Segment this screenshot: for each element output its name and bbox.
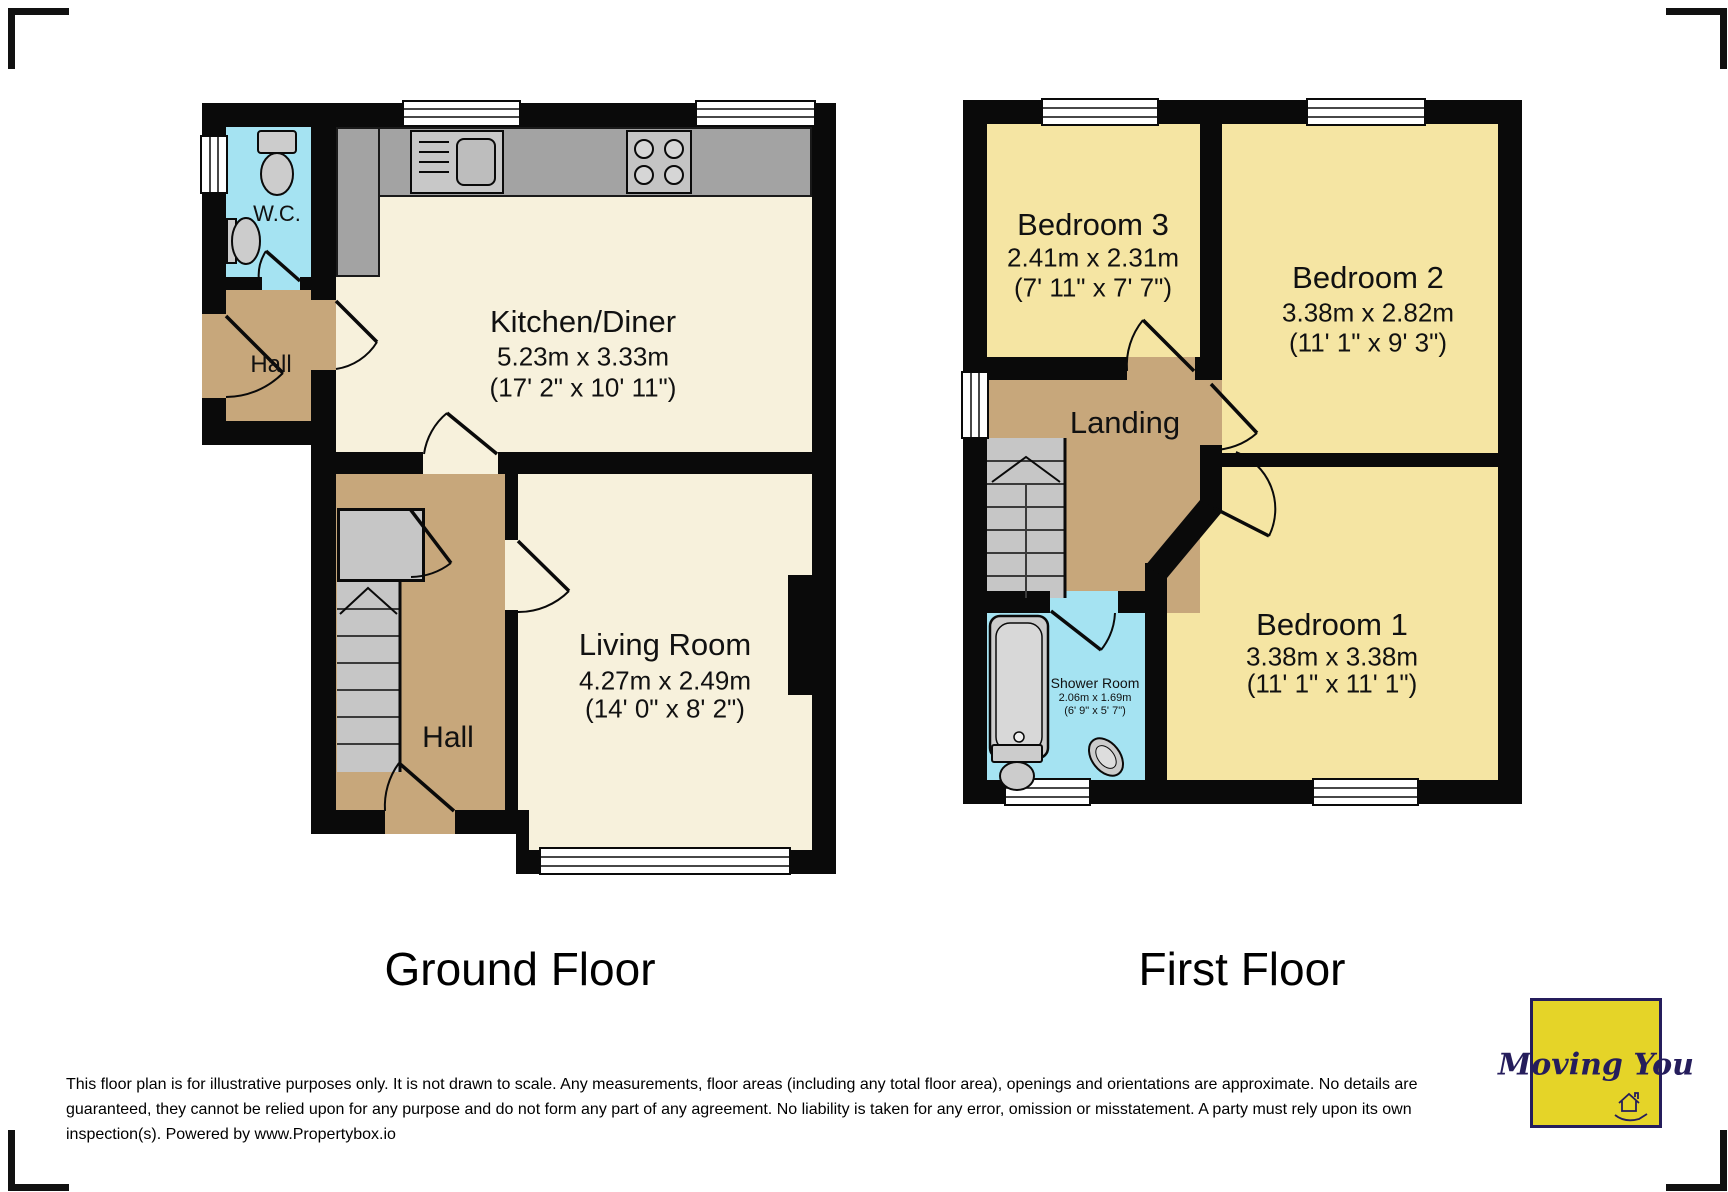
window [201, 136, 227, 193]
door-leaf [399, 763, 454, 811]
hob [627, 131, 691, 193]
moving-you-logo: Moving You [1530, 998, 1662, 1128]
ground-floor-title: Ground Floor [384, 942, 655, 996]
logo-text: Moving You [1498, 1048, 1694, 1083]
wall-diagonal [1145, 500, 1222, 578]
window [696, 101, 815, 126]
door-leaf [447, 413, 497, 454]
door-leaf [1051, 611, 1101, 650]
plan-detail-overlay [0, 0, 1728, 1192]
first-floor-title: First Floor [1139, 942, 1346, 996]
room-dims-kitchen-imperial: (17' 2" x 10' 11") [490, 373, 677, 404]
room-dims-kitchen-metric: 5.23m x 3.33m [497, 342, 669, 373]
kitchen-sink [411, 131, 503, 193]
room-dims-shower-imperial: (6' 9" x 5' 7") [1064, 705, 1126, 717]
door-leaf [518, 541, 569, 591]
window [1042, 99, 1158, 125]
ground-stairs-treads [337, 582, 400, 772]
room-label-landing: Landing [1070, 405, 1180, 441]
room-dims-bedroom3-imperial: (7' 11" x 7' 7") [1014, 273, 1172, 304]
room-label-bedroom2: Bedroom 2 [1292, 260, 1444, 296]
disclaimer-line: guaranteed, they cannot be relied upon f… [66, 1097, 1418, 1122]
house-in-hand-icon [1611, 1089, 1655, 1123]
disclaimer-line: inspection(s). Powered by www.Propertybo… [66, 1122, 1418, 1147]
window [1307, 99, 1425, 125]
room-label-wc: W.C. [253, 201, 301, 227]
first-stairs-treads [987, 438, 1065, 598]
room-dims-bedroom1-imperial: (11' 1" x 11' 1") [1247, 669, 1418, 700]
room-dims-bedroom2-metric: 3.38m x 2.82m [1282, 298, 1454, 329]
door-leaf [266, 251, 300, 281]
door-leaf [336, 301, 377, 342]
room-label-kitchen: Kitchen/Diner [490, 304, 676, 340]
room-label-living: Living Room [579, 627, 751, 663]
room-dims-shower-metric: 2.06m x 1.69m [1059, 692, 1132, 704]
window [1313, 779, 1418, 805]
disclaimer-text: This floor plan is for illustrative purp… [66, 1072, 1418, 1147]
room-label-shower: Shower Room [1051, 675, 1140, 691]
room-dims-living-imperial: (14' 0" x 8' 2") [585, 694, 745, 725]
room-label-hall-upper: Hall [250, 351, 291, 379]
door-leaf [1211, 384, 1257, 433]
room-dims-living-metric: 4.27m x 2.49m [579, 666, 751, 697]
floorplan-page: W.C. Hall Kitchen/Diner 5.23m x 3.33m (1… [0, 0, 1728, 1192]
door-leaf [1214, 508, 1269, 536]
room-label-hall-lower: Hall [422, 721, 474, 755]
room-label-bedroom1: Bedroom 1 [1256, 607, 1408, 643]
wc-toilet [258, 131, 296, 195]
door-leaf [1143, 320, 1194, 371]
window [403, 101, 520, 126]
window [962, 372, 988, 438]
disclaimer-line: This floor plan is for illustrative purp… [66, 1072, 1418, 1097]
door-leaf [410, 509, 451, 563]
room-dims-bedroom2-imperial: (11' 1" x 9' 3") [1289, 328, 1447, 359]
bath [990, 616, 1048, 758]
room-label-bedroom3: Bedroom 3 [1017, 207, 1169, 243]
room-dims-bedroom3-metric: 2.41m x 2.31m [1007, 243, 1179, 274]
shower-basin [1082, 732, 1130, 782]
doors [226, 251, 1275, 811]
window [540, 848, 790, 874]
